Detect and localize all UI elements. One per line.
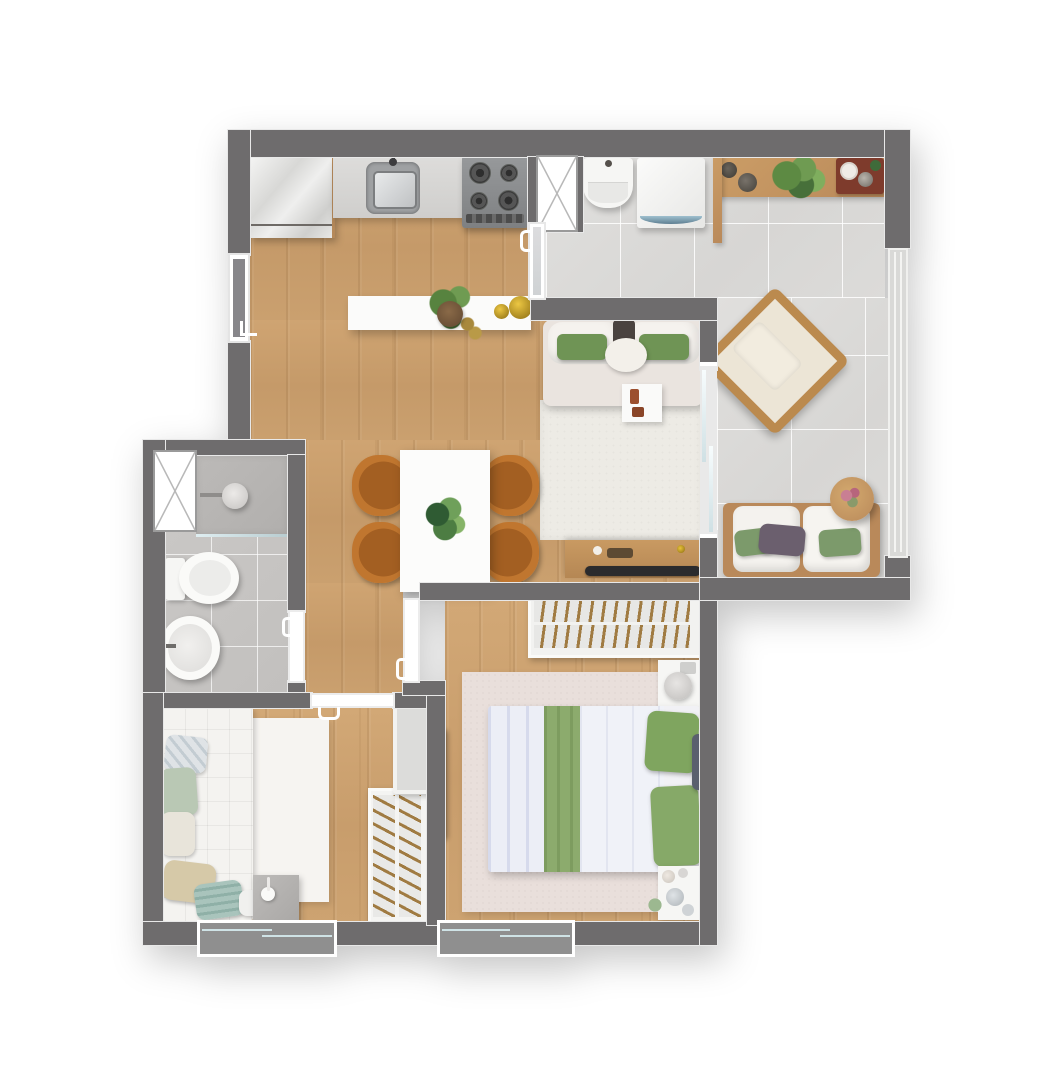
burner-icon	[469, 162, 491, 184]
gas-cooktop	[462, 156, 528, 228]
pillow-green	[650, 785, 702, 867]
lamp-shade-icon	[664, 672, 692, 700]
door-handle-icon	[282, 617, 293, 637]
burner-icon	[470, 192, 488, 210]
pillow-teal	[193, 879, 246, 921]
ventilation-shaft-kitchen	[536, 155, 578, 232]
wall-bedroom2-right	[700, 583, 717, 945]
sliding-pane	[702, 370, 706, 462]
hanger-rail	[399, 795, 421, 917]
dining-chair	[482, 522, 539, 583]
wall-balcony-bottom	[700, 578, 910, 600]
gold-dot-icon	[677, 545, 685, 553]
wall-top	[228, 130, 910, 157]
serving-tray	[836, 158, 884, 194]
hanger-rail	[534, 625, 690, 648]
floorplan-canvas	[0, 0, 1050, 1080]
sink-basin	[373, 171, 417, 209]
washbasin	[160, 616, 220, 680]
shelf-divider	[713, 153, 722, 243]
wall-left-upper	[228, 130, 250, 255]
door-handle-icon	[318, 707, 340, 720]
cup-icon	[662, 870, 675, 883]
living-rug	[540, 400, 702, 540]
wall-hallway-stub	[403, 681, 445, 695]
cup-icon	[840, 162, 858, 180]
vase-icon	[721, 162, 737, 178]
bedroom2-window	[437, 920, 575, 957]
burner-icon	[498, 190, 519, 211]
pillow-round	[605, 338, 647, 372]
lamp-arm	[267, 877, 270, 891]
wall-bedroom1-top-left	[143, 693, 312, 708]
dining-table	[400, 450, 490, 592]
wall-living-right-lower	[700, 531, 717, 583]
dish-icon	[682, 904, 694, 916]
window-glass-line	[442, 929, 510, 931]
wardrobe-bedroom1	[368, 788, 433, 930]
window-glass-line	[202, 929, 272, 931]
living-balcony-sliding-door	[700, 362, 717, 538]
carafe-icon	[666, 888, 684, 906]
kitchen-service-door	[528, 222, 546, 300]
door-handle-icon	[396, 658, 408, 680]
pillow-green	[818, 528, 862, 558]
door-handle-icon	[520, 230, 533, 252]
hanger-rail	[534, 599, 690, 622]
sliding-pane	[709, 446, 713, 532]
refrigerator	[250, 158, 335, 238]
glass-partition	[196, 534, 288, 537]
window-glass-line	[262, 935, 332, 937]
pillow-cream	[161, 812, 195, 856]
door-handle-icon	[240, 321, 257, 336]
wall-bedroom2-top	[420, 583, 717, 600]
balcony-glass-railing	[888, 248, 908, 558]
tank-basin	[588, 182, 628, 203]
double-bed	[488, 706, 700, 872]
dining-chair	[482, 455, 539, 516]
wall-living-service	[531, 298, 717, 320]
fridge-door-line	[250, 224, 332, 226]
flowers-icon	[836, 483, 866, 511]
wall-bedroom1-left	[143, 693, 163, 945]
bedroom2-door	[403, 598, 420, 683]
toilet	[165, 552, 240, 604]
bedroom1-window	[197, 920, 337, 957]
entry-door	[228, 253, 250, 343]
knob-strip	[466, 214, 524, 223]
herb-pot-icon	[870, 160, 881, 171]
wardrobe-bedroom2	[528, 594, 702, 658]
vase-icon	[738, 173, 757, 192]
cup-icon	[593, 546, 602, 555]
toilet-bowl	[179, 552, 239, 604]
ventilation-shaft-bathroom	[153, 450, 197, 532]
single-bed	[163, 706, 253, 922]
plant-icon	[770, 155, 826, 201]
railing-glass-line	[900, 252, 902, 552]
toilet-seat	[189, 560, 231, 596]
railing-glass-line	[894, 252, 896, 552]
round-side-table	[830, 477, 874, 521]
tray-item	[630, 389, 639, 404]
basin-inner	[168, 624, 212, 672]
balcony-shelf	[716, 157, 886, 197]
wall-left-lower	[228, 341, 250, 455]
tray-item	[632, 407, 644, 417]
kitchen-sink	[366, 162, 420, 214]
pillow-sage	[159, 767, 198, 817]
tray-icon	[607, 548, 633, 558]
window-glass-line	[500, 935, 570, 937]
sheet-folds-left	[488, 706, 544, 872]
green-runner	[544, 706, 580, 872]
laundry-tank	[583, 158, 633, 208]
pillow-purple	[758, 523, 806, 557]
jar-icon	[678, 868, 688, 878]
desk	[253, 875, 299, 921]
plant-sprig-icon	[646, 894, 664, 916]
nut-bowl-icon	[437, 301, 463, 327]
gold-bowl-icon	[494, 304, 509, 319]
plant-centerpiece-icon	[420, 492, 470, 548]
wall-bathroom-right-upper	[288, 455, 305, 612]
nightstand-with-lamp	[658, 660, 700, 712]
kettle-icon	[858, 172, 873, 187]
lounge-cushion	[731, 320, 803, 392]
side-table	[622, 384, 662, 422]
bathroom-door	[288, 610, 305, 683]
washing-machine	[637, 158, 705, 228]
wall-bedrooms-divider	[427, 685, 445, 925]
bedroom1-door	[310, 693, 395, 708]
tank-faucet	[605, 160, 612, 167]
nightstand	[658, 866, 700, 920]
hanger-rail	[373, 795, 395, 917]
wall-balcony-right-stub	[885, 556, 910, 580]
service-door-glass	[533, 227, 541, 295]
burner-icon	[500, 164, 518, 182]
apartment-floorplan	[0, 0, 1050, 1080]
hallway-floor	[305, 583, 403, 693]
wall-balcony-right-top	[885, 130, 910, 248]
washer-lid-glass	[640, 216, 702, 224]
pillow-green	[557, 334, 607, 360]
shower-head-icon	[222, 483, 248, 509]
tv	[585, 566, 701, 576]
